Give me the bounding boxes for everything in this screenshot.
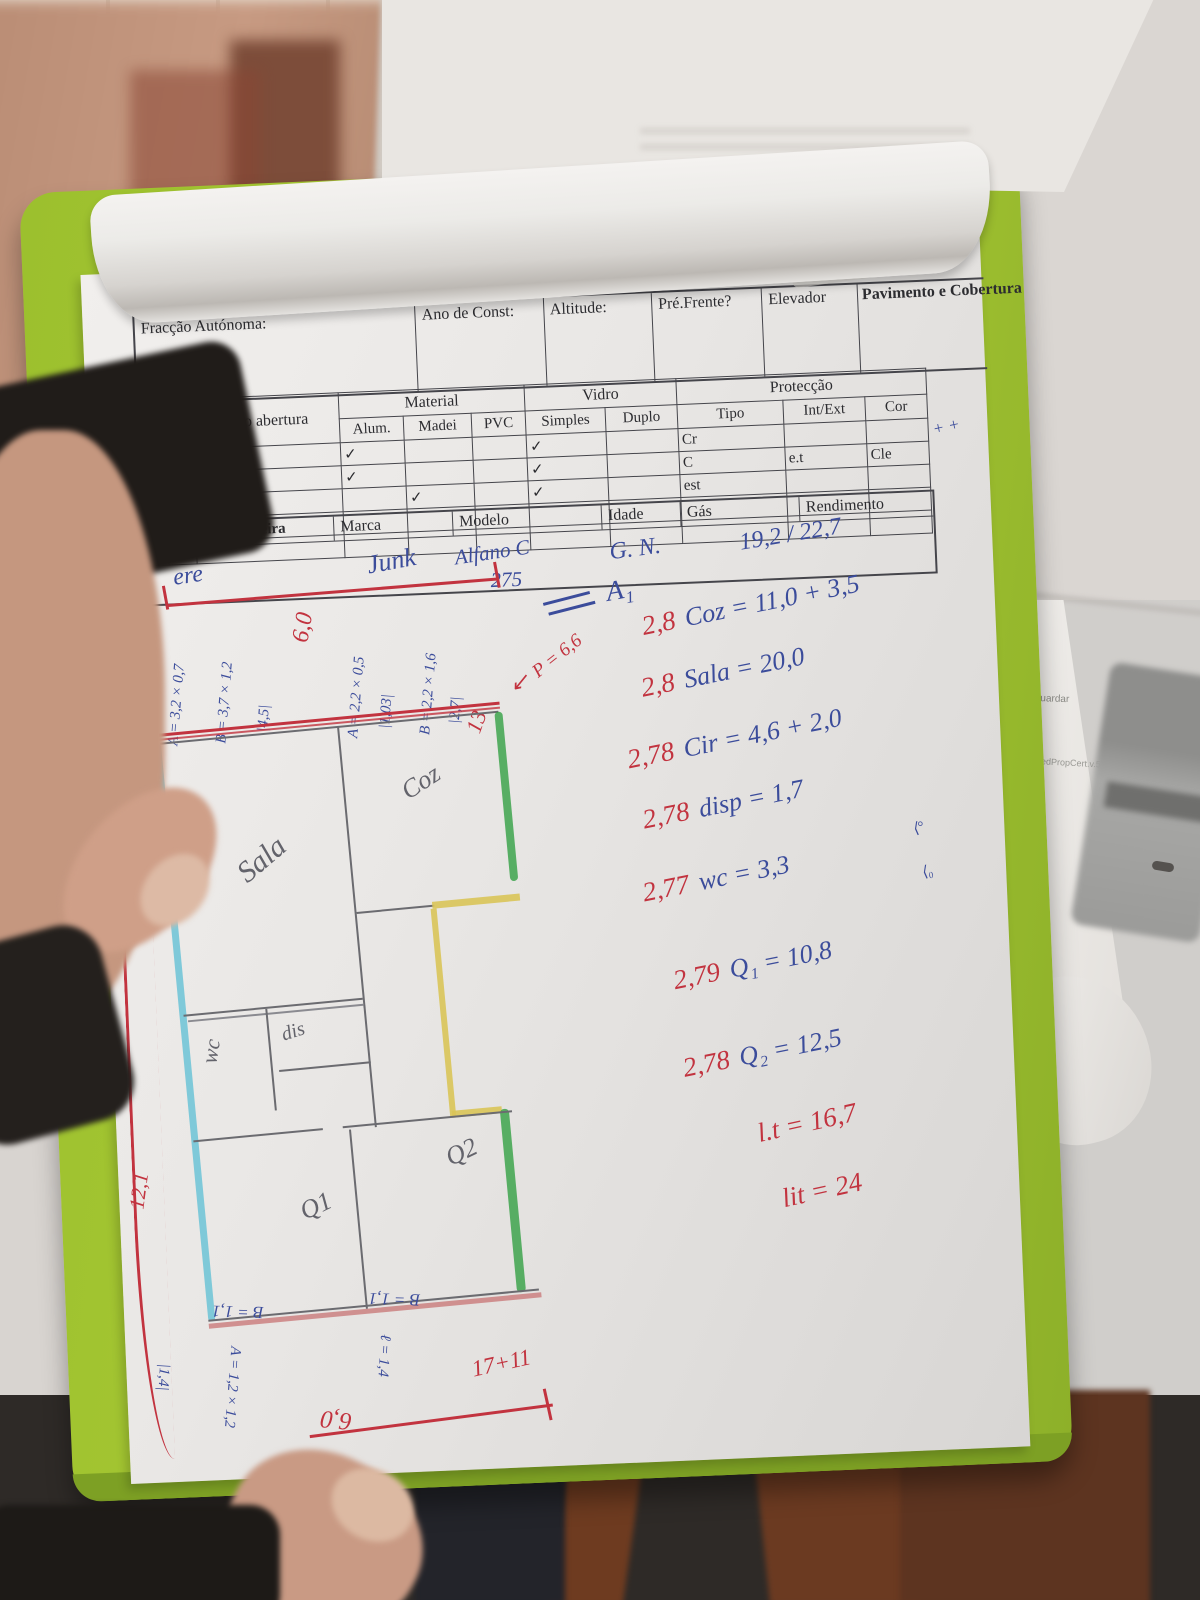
room-label-coz: Coz	[396, 759, 446, 806]
photo-scene: ambos guardar MobileDedPropCert.v.5 Ps. …	[0, 0, 1200, 1600]
boiler-value-gas: G. N.	[608, 533, 662, 566]
calc-line-cir: 2,78Cir = 4,6 + 2,0	[625, 702, 845, 775]
room-label-wc: wc	[196, 1037, 226, 1065]
wall-yellow-h1	[432, 894, 520, 909]
dim-bottom-sum: 17+11	[469, 1344, 533, 1382]
boiler-value-marca: Junk	[364, 542, 418, 580]
boiler-modelo: Modelo	[453, 505, 603, 535]
wc-mark-2: ⟨₀	[918, 861, 935, 883]
wall-divider-sala-coz	[337, 727, 366, 1008]
wall-right-green-upper	[494, 711, 518, 881]
wall-q1-q2-divider	[349, 1129, 368, 1308]
wc-mark-1: ⟨°	[909, 817, 927, 839]
wall-main-horizontal-a	[193, 1128, 323, 1142]
calc-line-sala: 2,8Sala = 20,0	[638, 640, 807, 703]
sub-header-madei: Madei	[403, 413, 472, 440]
a1-equals-stroke-2	[548, 601, 595, 615]
wall-top-red-1	[159, 702, 500, 737]
sub-header-pvc: PVC	[471, 411, 526, 437]
sub-header-alum: Alum.	[339, 416, 404, 443]
room-label-dis: dis	[279, 1018, 308, 1047]
calc-total-2: lit = 24	[779, 1166, 865, 1214]
field-ano: Ano de Const:	[415, 298, 547, 391]
dim-bottom-b2: B = 1,1	[368, 1288, 420, 1309]
margin-note: + +	[931, 414, 962, 439]
field-pre-frente: Pré.Frente?	[652, 288, 766, 381]
calc-line-q1: 2,79Q₁ = 10,8	[670, 934, 834, 996]
sub-header-simples: Simples	[525, 408, 606, 435]
room-label-q2: Q2	[441, 1132, 483, 1173]
dim-top-4: 6,0	[288, 610, 320, 644]
a1-note: A₁	[604, 573, 636, 609]
calc-total-1: l.t = 16,7	[754, 1097, 859, 1149]
field-elevador: Elevador	[762, 284, 861, 376]
boiler-value-modelo: Alfano C	[453, 535, 531, 571]
sub-header-cor: Cor	[865, 394, 928, 421]
dim-bottom-l14: ℓ = 1,4	[373, 1334, 393, 1378]
left-dim-label: 12,1	[124, 1171, 154, 1211]
wall-yellow-v	[431, 908, 457, 1116]
sub-header-intext: Int/Ext	[783, 397, 866, 424]
floor-plan: Sala Coz wc dis Q1 Q2	[151, 678, 577, 1374]
wall-dis-bottom	[279, 1061, 371, 1072]
wall-top-pencil	[160, 711, 499, 745]
calc-line-q2: 2,78Q₂ = 12,5	[680, 1022, 844, 1084]
room-label-q1: Q1	[295, 1186, 337, 1227]
field-altitude: Altitude:	[543, 293, 655, 385]
dim-bottom-b1: B = 1,1	[212, 1301, 264, 1322]
calc-line-disp: 2,78disp = 1,7	[640, 773, 807, 836]
wall-coz-bottom-pencil	[357, 905, 435, 914]
boiler-idade: Idade	[602, 502, 682, 529]
perimeter-note: P = 6,6	[528, 630, 587, 683]
calc-line-wc: 2,77wc = 3,3	[640, 848, 792, 908]
room-label-sala: Sala	[231, 829, 294, 889]
sub-header-duplo: Duplo	[605, 405, 678, 432]
wall-wc-dis-divider	[265, 1009, 277, 1111]
wall-corridor	[363, 1006, 376, 1128]
field-pavimento: Pavimento e Cobertura	[858, 279, 988, 372]
bottom-hand-shadow	[0, 1505, 280, 1600]
boiler-marca: Marca	[334, 512, 454, 541]
wall-right-green-lower	[500, 1109, 526, 1293]
wall-top-red-2	[159, 707, 500, 741]
dim-bottom-d14: |1,4|	[154, 1363, 173, 1391]
wall-main-horizontal-b	[343, 1110, 512, 1128]
